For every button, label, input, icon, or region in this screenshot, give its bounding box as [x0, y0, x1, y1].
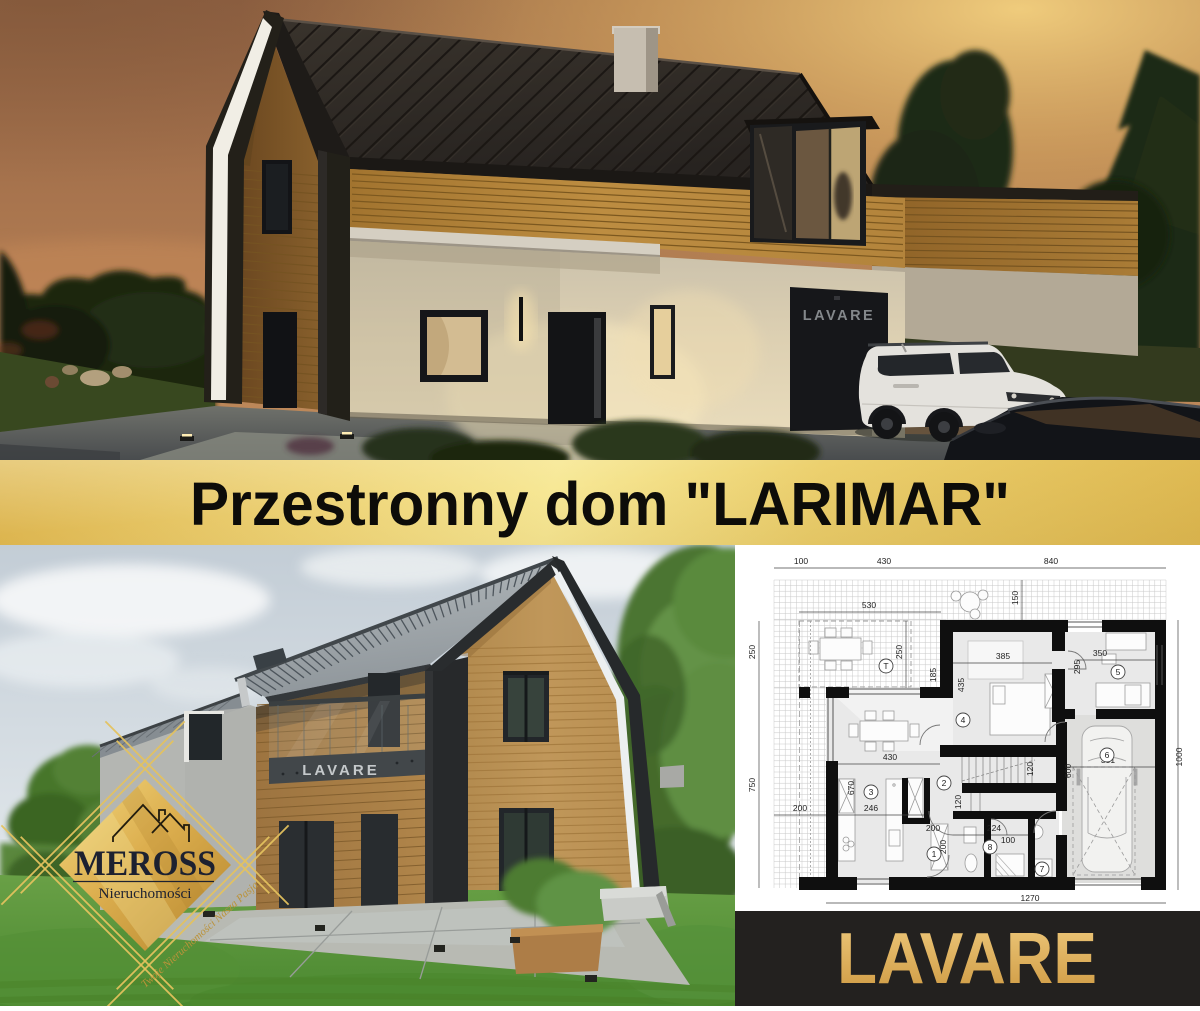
svg-text:530: 530	[862, 600, 876, 610]
svg-text:435: 435	[956, 678, 966, 692]
svg-text:LAVARE: LAVARE	[302, 762, 379, 779]
svg-text:1000: 1000	[1174, 747, 1184, 766]
svg-text:224: 224	[987, 823, 1001, 833]
svg-text:385: 385	[996, 651, 1010, 661]
svg-text:Nieruchomości: Nieruchomości	[99, 886, 192, 902]
svg-text:7: 7	[1040, 864, 1045, 874]
svg-text:185: 185	[928, 668, 938, 682]
svg-text:Przestronny dom "LARIMAR": Przestronny dom "LARIMAR"	[190, 470, 1010, 538]
svg-text:1270: 1270	[1021, 893, 1040, 903]
svg-text:4: 4	[961, 715, 966, 725]
svg-text:100: 100	[794, 556, 808, 566]
svg-text:246: 246	[864, 803, 878, 813]
svg-text:5: 5	[1116, 667, 1121, 677]
svg-text:120: 120	[1025, 762, 1035, 776]
svg-text:600: 600	[1063, 764, 1073, 778]
svg-text:MEROSS: MEROSS	[74, 843, 216, 883]
svg-text:LAVARE: LAVARE	[803, 308, 875, 324]
svg-text:430: 430	[877, 556, 891, 566]
svg-text:250: 250	[747, 645, 757, 659]
svg-text:200: 200	[926, 823, 940, 833]
svg-text:750: 750	[747, 778, 757, 792]
svg-text:120: 120	[953, 795, 963, 809]
svg-text:150: 150	[1010, 591, 1020, 605]
svg-text:6: 6	[1105, 750, 1110, 760]
svg-text:430: 430	[883, 752, 897, 762]
svg-text:2: 2	[942, 778, 947, 788]
svg-text:LAVARE: LAVARE	[837, 919, 1097, 999]
svg-text:100: 100	[1001, 835, 1015, 845]
svg-text:T: T	[883, 661, 888, 671]
svg-text:840: 840	[1044, 556, 1058, 566]
svg-text:3: 3	[869, 787, 874, 797]
svg-text:200: 200	[793, 803, 807, 813]
svg-text:670: 670	[846, 781, 856, 795]
svg-text:350: 350	[1093, 648, 1107, 658]
svg-text:8: 8	[988, 842, 993, 852]
svg-text:250: 250	[894, 645, 904, 659]
svg-text:1: 1	[932, 849, 937, 859]
svg-text:295: 295	[1072, 660, 1082, 674]
